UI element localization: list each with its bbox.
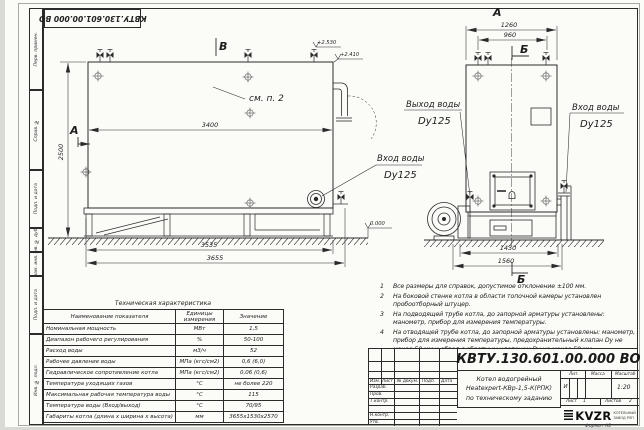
kvzr-logo-text: KVZR	[575, 409, 611, 423]
tech-characteristics: Техническая характеристика Наименование …	[43, 300, 283, 423]
table-row: Диапазон рабочего регулирования%50-100	[44, 335, 284, 346]
note-item: 3На подводящей трубе котла, до запорной …	[380, 311, 636, 328]
product-name-line1: Котел водогрейный	[477, 375, 542, 384]
note-item: 1Все размеры для справок, допустимое отк…	[380, 283, 636, 292]
tech-col-value: Значение	[224, 310, 284, 324]
kvzr-logo-subtext: КОТЕЛЬНЫЙ ЗАВОД РЭП	[613, 411, 635, 420]
tb-lit-header: Лит.	[569, 372, 579, 377]
tb-col-list: Лист	[382, 379, 393, 384]
row-name: Температура уходящих газов	[44, 379, 176, 390]
tech-table-title: Техническая характеристика	[43, 300, 283, 307]
note-text: Все размеры для справок, допустимое откл…	[393, 283, 636, 292]
tb-scale-value: 1:20	[617, 384, 630, 391]
table-row: Температура уходящих газов°Сне более 220	[44, 379, 284, 390]
row-value: 52	[224, 346, 284, 357]
document-code: КВТУ.130.601.00.000 ВО	[457, 349, 639, 371]
row-unit: МПа (кгс/см2)	[176, 368, 224, 379]
tb-col-sign: Подп.	[422, 379, 435, 384]
tb-row-razrab: Разраб.	[370, 385, 387, 390]
front-inlet-dy: Dy125	[580, 119, 613, 130]
tb-col-izm: Изм.	[370, 379, 380, 384]
kvzr-logo: KVZR КОТЕЛЬНЫЙ ЗАВОД РЭП	[561, 405, 639, 426]
row-value: 0,6 (6,0)	[224, 357, 284, 368]
row-name: Рабочее давление воды	[44, 357, 176, 368]
dim-960: 960	[504, 31, 516, 39]
tb-col-date: Дата	[441, 379, 452, 384]
tb-sheets-label: Листов	[605, 399, 621, 404]
tb-mass-header: Масса	[591, 372, 605, 377]
table-row: Расход водым3/ч52	[44, 346, 284, 357]
row-value: 1,5	[224, 324, 284, 335]
product-name-line2: Heatexpert-КВр-1,5-К(РПК)	[466, 384, 552, 393]
table-row: Максимальная рабочая температура воды°С1…	[44, 390, 284, 401]
note-text: На боковой стенке котла в области топочн…	[393, 293, 636, 310]
front-view	[424, 53, 604, 248]
front-inlet-label: Вход воды	[572, 103, 620, 113]
title-block: Изм. Лист № докум. Подп. Дата Разраб. Пр…	[368, 348, 638, 425]
row-value: 115	[224, 390, 284, 401]
dim-1560: 1560	[498, 257, 515, 265]
tb-row-utv: Утв.	[370, 420, 379, 425]
tb-sheet-label: Лист	[566, 399, 577, 404]
elevation-0000: 0.000	[370, 221, 386, 227]
row-value: 70/95	[224, 401, 284, 412]
tech-col-unit: Единицыизмерения	[176, 310, 224, 324]
row-unit: °С	[176, 390, 224, 401]
side-inlet-label: Вход воды	[377, 154, 425, 164]
note-number: 2	[380, 293, 393, 310]
view-label-a: А	[492, 6, 502, 19]
table-row: Рабочее давление водыМПа (кгс/см2)0,6 (6…	[44, 357, 284, 368]
row-unit: МПа (кгс/см2)	[176, 357, 224, 368]
drawing-sheet: { "stamp_top": "КВТУ.130.601.00.000 ВО",…	[0, 0, 644, 430]
note-item: 2На боковой стенке котла в области топоч…	[380, 293, 636, 310]
tb-row-tcontr: Т.контр.	[370, 399, 389, 404]
tb-col-doc: № докум.	[397, 379, 418, 384]
row-name: Габариты котла (длина х ширина х высота)	[44, 412, 176, 423]
row-unit: м3/ч	[176, 346, 224, 357]
product-name-line3: по техническому заданию	[466, 394, 552, 403]
row-unit: °С	[176, 401, 224, 412]
dim-3400: 3400	[202, 121, 219, 129]
dim-3535: 3535	[201, 241, 218, 249]
kvzr-sub-line1: КОТЕЛЬНЫЙ	[613, 411, 635, 415]
dim-1430: 1430	[500, 244, 517, 252]
tb-lit-value: И	[564, 384, 568, 390]
row-name: Расход воды	[44, 346, 176, 357]
row-unit: мм	[176, 412, 224, 423]
table-row: Температура воды (Вход/выход)°С70/95	[44, 401, 284, 412]
row-name: Температура воды (Вход/выход)	[44, 401, 176, 412]
row-name: Гидравлическое сопротивление котла	[44, 368, 176, 379]
dim-2500: 2500	[57, 144, 65, 161]
row-name: Максимальная рабочая температура воды	[44, 390, 176, 401]
row-unit: °С	[176, 379, 224, 390]
notes-list: 1Все размеры для справок, допустимое отк…	[380, 283, 636, 355]
elevation-2410: +2.410	[340, 52, 360, 58]
tech-col-name: Наименование показателя	[44, 310, 176, 324]
side-view	[48, 50, 376, 246]
tech-table: Наименование показателя Единицыизмерения…	[43, 309, 284, 423]
note-number: 3	[380, 311, 393, 328]
table-row: Гидравлическое сопротивление котлаМПа (к…	[44, 368, 284, 379]
tech-col-unit-l2: измерения	[178, 317, 221, 323]
see-note-2-label: см. п. 2	[249, 94, 284, 104]
section-label-v: В	[219, 40, 227, 53]
section-label-a: А	[69, 124, 79, 137]
row-unit: МВт	[176, 324, 224, 335]
row-unit: %	[176, 335, 224, 346]
front-outlet-dy: Dy125	[418, 116, 451, 127]
front-outlet-label: Выход воды	[406, 100, 460, 110]
format-label: Формат А3	[556, 424, 640, 429]
row-name: Диапазон рабочего регулирования	[44, 335, 176, 346]
note-number: 1	[380, 283, 393, 292]
dim-3655: 3655	[207, 254, 224, 262]
row-value: 3655х1530х2570	[224, 412, 284, 423]
kvzr-sub-line2: ЗАВОД РЭП	[613, 416, 635, 420]
row-name: Номинальная мощность	[44, 324, 176, 335]
table-row: Номинальная мощностьМВт1,5	[44, 324, 284, 335]
row-value: 50-100	[224, 335, 284, 346]
front-view-dimensions	[404, 26, 624, 276]
tech-table-header-row: Наименование показателя Единицыизмерения…	[44, 310, 284, 324]
row-value: не более 220	[224, 379, 284, 390]
tb-scale-header: Масштаб	[615, 372, 635, 377]
row-value: 0,06 (0,6)	[224, 368, 284, 379]
side-inlet-dy: Dy125	[384, 170, 417, 181]
elevation-2530: +2.530	[317, 40, 337, 46]
tb-sheet-value: 1	[583, 399, 586, 404]
tb-sheets-value: 2	[629, 399, 632, 404]
tb-row-ncontr: Н.контр.	[370, 413, 389, 418]
note-text: На подводящей трубе котла, до запорной а…	[393, 311, 636, 328]
product-name: Котел водогрейный Heatexpert-КВр-1,5-К(Р…	[457, 371, 561, 408]
kvzr-logo-icon	[564, 410, 573, 421]
table-row: Габариты котла (длина х ширина х высота)…	[44, 412, 284, 423]
tb-row-prov: Пров.	[370, 392, 383, 397]
dim-1260: 1260	[501, 21, 518, 29]
section-label-b-top: Б	[520, 43, 528, 56]
